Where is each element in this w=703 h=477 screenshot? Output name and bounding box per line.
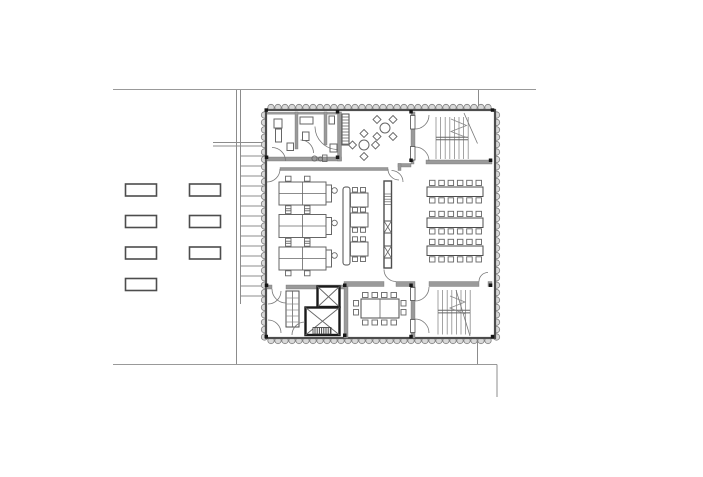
- study-tables: [343, 187, 368, 265]
- floor-plan-drawing: [0, 0, 703, 477]
- floor-plan-page: [0, 0, 703, 477]
- parking-stalls: [126, 184, 221, 291]
- open-office-desks: [279, 176, 337, 276]
